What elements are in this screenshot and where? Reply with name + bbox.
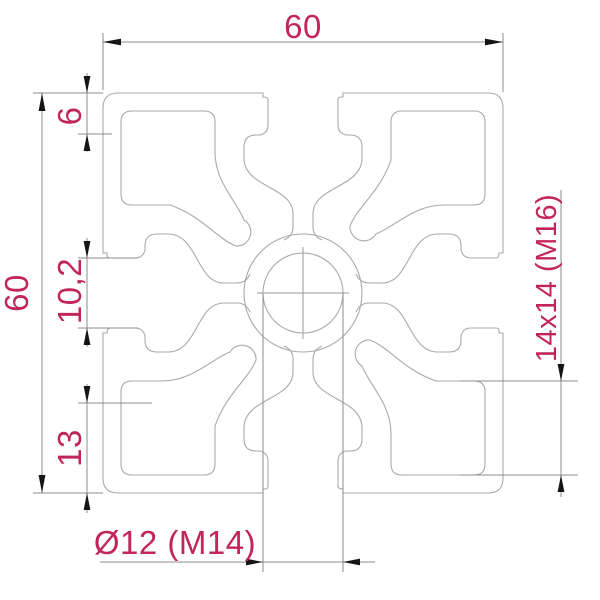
dimension-arrowheads [39, 39, 565, 566]
dim-label-slot-opening: 10,2 [51, 258, 88, 324]
dim-label-center-bore: Ø12 (M14) [94, 524, 256, 561]
dim-label-top-width: 60 [284, 8, 322, 45]
profile-drawing-svg: 60 60 6 10,2 13 14x14 (M16) Ø12 (M14) [0, 0, 600, 600]
dim-label-bottom-flange: 13 [51, 429, 88, 467]
dim-label-slot-lip-depth: 6 [51, 107, 88, 126]
dim-label-corner-pocket: 14x14 (M16) [531, 194, 563, 362]
center-crosshair [257, 247, 349, 339]
dim-label-left-height: 60 [0, 274, 35, 312]
technical-drawing-canvas: 60 60 6 10,2 13 14x14 (M16) Ø12 (M14) [0, 0, 600, 600]
